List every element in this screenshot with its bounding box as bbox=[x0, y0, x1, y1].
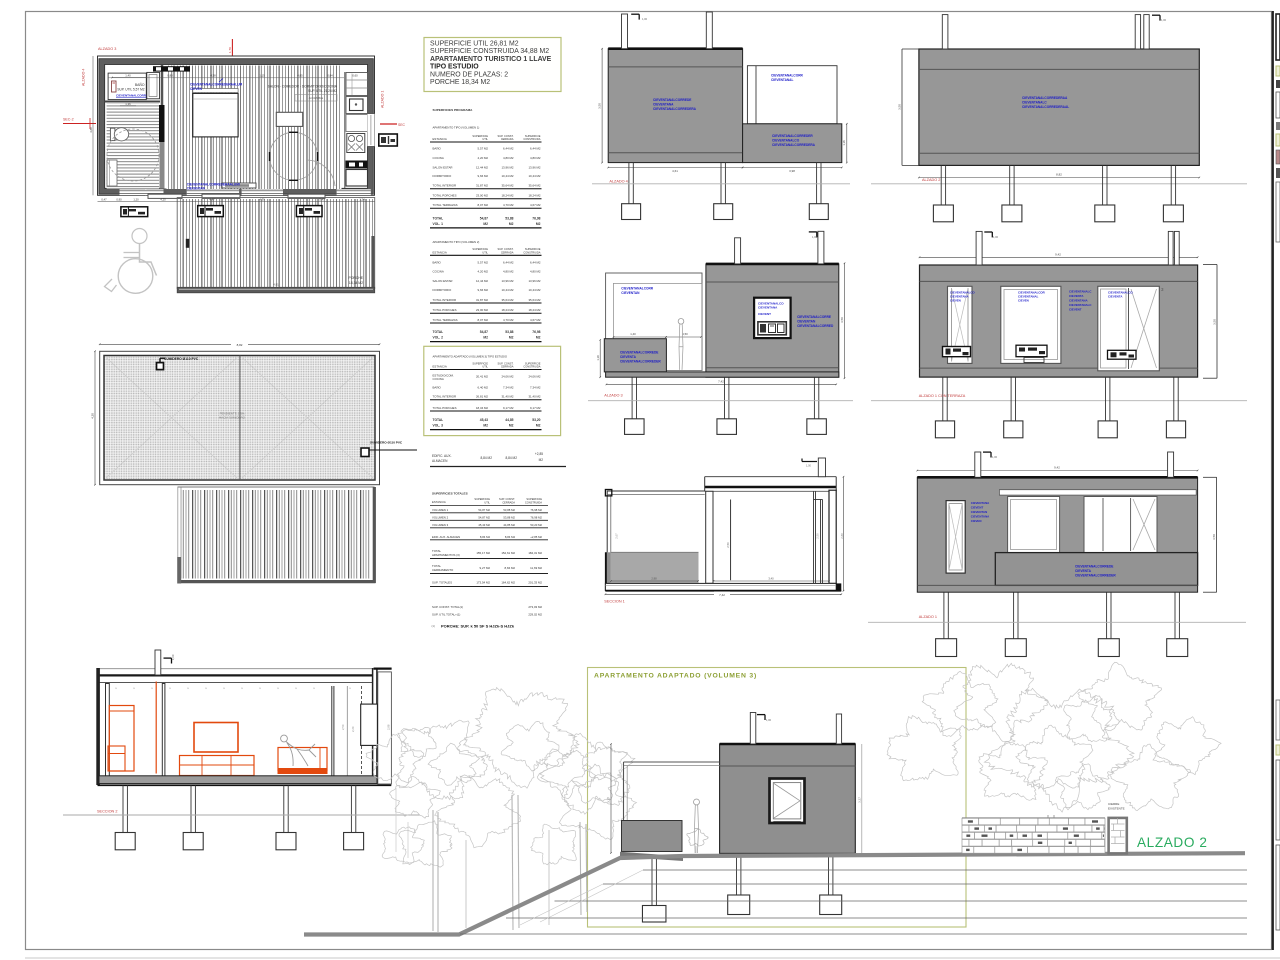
svg-text:×: × bbox=[151, 687, 153, 691]
svg-text:1,15: 1,15 bbox=[259, 74, 265, 78]
svg-text:SECCION 2: SECCION 2 bbox=[97, 810, 117, 814]
svg-text:35,64 M2: 35,64 M2 bbox=[501, 184, 513, 188]
svg-text:31,87 M2: 31,87 M2 bbox=[476, 298, 488, 302]
svg-text:23,00 M2: 23,00 M2 bbox=[476, 194, 488, 198]
svg-text:31,40 M2: 31,40 M2 bbox=[501, 395, 513, 399]
svg-text:5,57 M2: 5,57 M2 bbox=[478, 260, 489, 264]
svg-text:CIEVEN: CIEVEN bbox=[1018, 299, 1029, 303]
svg-text:4,47: 4,47 bbox=[209, 197, 215, 201]
svg-text:3,50: 3,50 bbox=[840, 317, 844, 323]
svg-text:1,00: 1,00 bbox=[171, 654, 175, 660]
svg-text:5,57 M2: 5,57 M2 bbox=[478, 147, 489, 151]
svg-text:CIEVENTANALCORREDERAA: CIEVENTANALCORREDERAA bbox=[1022, 96, 1068, 100]
svg-text:×: × bbox=[259, 687, 261, 691]
svg-text:3,40: 3,40 bbox=[768, 576, 774, 580]
svg-text:CIEVENTANALCORREDER: CIEVENTANALCORREDER bbox=[620, 360, 661, 364]
svg-text:EXISTENTE: EXISTENTE bbox=[1108, 807, 1125, 811]
svg-text:2,50: 2,50 bbox=[341, 724, 345, 730]
svg-text:(1): (1) bbox=[432, 624, 435, 628]
svg-text:12,44 M2: 12,44 M2 bbox=[476, 165, 488, 169]
svg-text:54,87: 54,87 bbox=[480, 330, 488, 334]
svg-text:8,84 M2: 8,84 M2 bbox=[505, 535, 516, 539]
svg-text:4,39: 4,39 bbox=[259, 197, 265, 201]
svg-text:2,50: 2,50 bbox=[726, 542, 730, 548]
svg-text:CIEVENTANALCO: CIEVENTANALCO bbox=[772, 139, 800, 143]
svg-text:24,06 M2: 24,06 M2 bbox=[528, 375, 540, 379]
svg-text:18,24 M2: 18,24 M2 bbox=[528, 194, 540, 198]
svg-text:53,88: 53,88 bbox=[505, 217, 513, 221]
svg-text:20,41 M2: 20,41 M2 bbox=[476, 375, 488, 379]
svg-text:CIEVENTANALCORREDERA: CIEVENTANALCORREDERA bbox=[653, 107, 697, 111]
svg-text:2,88: 2,88 bbox=[387, 724, 391, 730]
svg-text:CIEVENTA: CIEVENTA bbox=[1069, 294, 1084, 298]
svg-text:6,44 M2: 6,44 M2 bbox=[530, 147, 541, 151]
svg-text:CIEVENTAN: CIEVENTAN bbox=[971, 510, 988, 514]
svg-text:4,81: 4,81 bbox=[273, 283, 279, 287]
svg-text:ALZADO 2: ALZADO 2 bbox=[1137, 835, 1208, 850]
svg-text:CIEVENTAN: CIEVENTAN bbox=[187, 186, 206, 190]
svg-text:TOTAL INTERIOR: TOTAL INTERIOR bbox=[433, 395, 457, 399]
svg-text:3,27: 3,27 bbox=[857, 797, 861, 803]
svg-text:4,70 M2: 4,70 M2 bbox=[503, 318, 514, 322]
svg-text:CIEVENTANALCORRED: CIEVENTANALCORRED bbox=[116, 94, 151, 98]
svg-text:×: × bbox=[187, 687, 189, 691]
svg-text:M2: M2 bbox=[509, 423, 514, 427]
svg-text:8,82: 8,82 bbox=[237, 343, 243, 347]
svg-text:3,50: 3,50 bbox=[1212, 534, 1216, 540]
svg-text:CIEVENTANA: CIEVENTANA bbox=[971, 515, 990, 519]
svg-text:8,07 M2: 8,07 M2 bbox=[478, 318, 489, 322]
svg-text:×: × bbox=[115, 687, 117, 691]
svg-text:CIERRE: CIERRE bbox=[1108, 802, 1119, 806]
svg-text:CONSTRUIDA: CONSTRUIDA bbox=[523, 137, 540, 141]
svg-text:5,47: 5,47 bbox=[319, 197, 325, 201]
svg-text:9,42: 9,42 bbox=[1054, 466, 1060, 470]
svg-text:0,47: 0,47 bbox=[101, 197, 107, 201]
svg-text:ALZADO 2: ALZADO 2 bbox=[922, 178, 940, 182]
svg-text:TOTAL: TOTAL bbox=[433, 217, 444, 221]
svg-text:4,88: 4,88 bbox=[89, 127, 93, 133]
svg-text:CIEVENTA: CIEVENTA bbox=[1108, 295, 1123, 299]
svg-text:53,20 M2: 53,20 M2 bbox=[530, 523, 542, 527]
svg-text:M2: M2 bbox=[483, 222, 488, 226]
svg-text:BAÑO: BAÑO bbox=[433, 146, 442, 151]
svg-text:CIEVEN: CIEVEN bbox=[190, 87, 203, 91]
svg-text:ESTANCIA: ESTANCIA bbox=[433, 250, 447, 254]
svg-text:EDIFIC. AUX.: EDIFIC. AUX. bbox=[432, 454, 452, 458]
svg-text:CIEVENT: CIEVENT bbox=[1069, 308, 1082, 312]
svg-text:VOL. 3: VOL. 3 bbox=[433, 423, 444, 427]
svg-text:53,20: 53,20 bbox=[532, 418, 540, 422]
svg-text:CONSTRUIDA: CONSTRUIDA bbox=[523, 250, 540, 254]
svg-text:76,98 M2: 76,98 M2 bbox=[530, 508, 542, 512]
svg-text:CIEVENTANALCORREDER: CIEVENTANALCORREDER bbox=[1075, 574, 1116, 578]
svg-text:9,66 M2: 9,66 M2 bbox=[478, 288, 489, 292]
svg-text:COCINA: COCINA bbox=[433, 270, 444, 274]
svg-text:3,50: 3,50 bbox=[598, 103, 602, 109]
svg-text:173,54 M2: 173,54 M2 bbox=[476, 581, 490, 585]
svg-text:1,18: 1,18 bbox=[596, 355, 600, 361]
svg-text:44,85 M2: 44,85 M2 bbox=[503, 523, 515, 527]
svg-text:1,00: 1,00 bbox=[993, 235, 999, 239]
svg-text:VOL. 2: VOL. 2 bbox=[433, 336, 444, 340]
svg-text:CERRADA: CERRADA bbox=[501, 365, 514, 369]
svg-text:13,96 M2: 13,96 M2 bbox=[528, 279, 540, 283]
svg-text:ALZADO 1 CON TERRAZA: ALZADO 1 CON TERRAZA bbox=[919, 394, 966, 398]
svg-text:DORMITORIO: DORMITORIO bbox=[433, 174, 452, 178]
svg-text:1,40: 1,40 bbox=[630, 332, 636, 336]
svg-text:SEC-2: SEC-2 bbox=[63, 118, 74, 122]
svg-text:M2: M2 bbox=[536, 222, 541, 226]
svg-text:1,00: 1,00 bbox=[812, 235, 818, 239]
svg-text:TOTAL: TOTAL bbox=[433, 418, 444, 422]
svg-text:7,34 M2: 7,34 M2 bbox=[503, 385, 514, 389]
svg-text:TOTAL INTERIOR: TOTAL INTERIOR bbox=[433, 298, 457, 302]
svg-text:4,80 M2: 4,80 M2 bbox=[530, 270, 541, 274]
svg-text:4,85: 4,85 bbox=[297, 74, 303, 78]
svg-text:SUMIDERO Ø110 PVC: SUMIDERO Ø110 PVC bbox=[370, 441, 403, 445]
svg-text:×: × bbox=[313, 687, 315, 691]
svg-text:1,00: 1,00 bbox=[992, 455, 998, 459]
svg-text:CIEVENT: CIEVENT bbox=[758, 312, 771, 316]
svg-text:1,00: 1,00 bbox=[1161, 18, 1167, 22]
svg-text:SUMIDERO Ø110 PVC: SUMIDERO Ø110 PVC bbox=[164, 357, 199, 361]
svg-text:6,44 M2: 6,44 M2 bbox=[530, 260, 541, 264]
svg-text:54,87: 54,87 bbox=[480, 217, 488, 221]
svg-text:CONSTRUIDA: CONSTRUIDA bbox=[523, 365, 540, 369]
svg-text:CIEVENTANA: CIEVENTANA bbox=[971, 501, 990, 505]
svg-text:HACIA SUMIDERO: HACIA SUMIDERO bbox=[219, 416, 246, 420]
svg-text:3,27: 3,27 bbox=[606, 797, 610, 803]
svg-text:13,96 M2: 13,96 M2 bbox=[501, 279, 513, 283]
svg-text:CIEVENTANA: CIEVENTANA bbox=[758, 306, 778, 310]
svg-text:PORCHE: SUP. k 50 SF S HJZk-S: PORCHE: SUP. k 50 SF S HJZk-S HJZk bbox=[441, 623, 515, 628]
svg-text:0,80: 0,80 bbox=[167, 74, 173, 78]
svg-text:SUPERFICIE: SUPERFICIE bbox=[474, 497, 490, 501]
svg-text:SUP. UTIL TOTAL+(1): SUP. UTIL TOTAL+(1) bbox=[432, 613, 460, 617]
svg-text:CIEVENTA: CIEVENTA bbox=[1075, 569, 1092, 573]
svg-text:CIEVENTANALCORR: CIEVENTANALCORR bbox=[771, 74, 804, 78]
svg-text:×: × bbox=[133, 687, 135, 691]
svg-text:CIEVENTANALCORREDE: CIEVENTANALCORREDE bbox=[620, 351, 658, 355]
svg-text:SUP. CONST. TOTAL(1): SUP. CONST. TOTAL(1) bbox=[432, 605, 463, 609]
svg-text:18,24 M2: 18,24 M2 bbox=[501, 194, 513, 198]
svg-text:18,24 M2: 18,24 M2 bbox=[501, 308, 513, 312]
svg-text:UTIL: UTIL bbox=[482, 250, 488, 254]
svg-text:1,36: 1,36 bbox=[125, 102, 131, 106]
svg-text:UTIL: UTIL bbox=[484, 500, 490, 504]
svg-text:VOLUMEN 1: VOLUMEN 1 bbox=[432, 508, 449, 512]
svg-text:0,90: 0,90 bbox=[116, 197, 122, 201]
svg-text:6,44 M2: 6,44 M2 bbox=[503, 260, 514, 264]
svg-text:SALON ESTAR: SALON ESTAR bbox=[433, 279, 453, 283]
svg-text:6,44 M2: 6,44 M2 bbox=[503, 147, 514, 151]
svg-text:2,67: 2,67 bbox=[615, 533, 619, 539]
svg-text:CERRADA: CERRADA bbox=[501, 250, 514, 254]
svg-text:ALMACEN: ALMACEN bbox=[432, 459, 448, 463]
svg-text:CERRAMIENTO: CERRAMIENTO bbox=[432, 568, 454, 572]
svg-text:45,43 M2: 45,43 M2 bbox=[478, 523, 490, 527]
svg-text:DORMITORIO: DORMITORIO bbox=[433, 288, 452, 292]
svg-text:CIEVENTANALCORREDE: CIEVENTANALCORREDE bbox=[1075, 565, 1113, 569]
svg-text:7,42: 7,42 bbox=[718, 380, 724, 384]
svg-text:18,24 M2: 18,24 M2 bbox=[528, 308, 540, 312]
svg-text:8,84 M2: 8,84 M2 bbox=[505, 566, 516, 570]
svg-text:53,88 M2: 53,88 M2 bbox=[503, 508, 515, 512]
svg-text:8,84 M2: 8,84 M2 bbox=[480, 535, 491, 539]
svg-text:4,20 M2: 4,20 M2 bbox=[478, 270, 489, 274]
svg-text:UTIL: UTIL bbox=[482, 365, 488, 369]
svg-text:CIEVENT: CIEVENT bbox=[971, 506, 984, 510]
svg-text:4,50: 4,50 bbox=[682, 332, 688, 336]
svg-text:4,61: 4,61 bbox=[672, 169, 678, 173]
svg-text:201,33 M2: 201,33 M2 bbox=[528, 581, 542, 585]
svg-text:TOTAL PORCHES: TOTAL PORCHES bbox=[433, 308, 457, 312]
svg-text:12,44 M2: 12,44 M2 bbox=[476, 279, 488, 283]
svg-text:×: × bbox=[295, 687, 297, 691]
svg-text:1,00: 1,00 bbox=[806, 465, 811, 468]
svg-text:CIEVEN: CIEVEN bbox=[950, 299, 961, 303]
svg-text:3,50: 3,50 bbox=[897, 104, 901, 110]
svg-text:M2: M2 bbox=[483, 336, 488, 340]
svg-text:APARTAMENTO TIPO (VOLUMEN 2): APARTAMENTO TIPO (VOLUMEN 2) bbox=[433, 240, 480, 244]
svg-text:CIEVENTANALCORR: CIEVENTANALCORR bbox=[621, 287, 654, 291]
svg-text:EDIF. AUX. ALMACEN: EDIF. AUX. ALMACEN bbox=[432, 535, 460, 539]
svg-text:10,44 M2: 10,44 M2 bbox=[528, 174, 540, 178]
svg-text:TOTAL TERRAZAS: TOTAL TERRAZAS bbox=[433, 318, 458, 322]
svg-text:4,20: 4,20 bbox=[160, 197, 166, 201]
svg-text:COCINA: COCINA bbox=[433, 377, 444, 381]
svg-text:PORCHE: PORCHE bbox=[348, 276, 363, 280]
svg-text:ALZADO 3: ALZADO 3 bbox=[98, 47, 116, 51]
svg-text:54,87 M2: 54,87 M2 bbox=[478, 516, 490, 520]
svg-text:35,64 M2: 35,64 M2 bbox=[501, 298, 513, 302]
svg-text:10,44 M2: 10,44 M2 bbox=[528, 288, 540, 292]
svg-text:2,50: 2,50 bbox=[816, 533, 820, 539]
svg-text:×: × bbox=[277, 687, 279, 691]
svg-text:CIEVENTANA: CIEVENTANA bbox=[1069, 299, 1088, 303]
svg-text:54,87 M2: 54,87 M2 bbox=[478, 508, 490, 512]
svg-text:152,61 M2: 152,61 M2 bbox=[501, 551, 515, 555]
svg-text:155,17 M2: 155,17 M2 bbox=[476, 551, 490, 555]
svg-text:SEC: SEC bbox=[398, 123, 406, 127]
svg-text:164,62 M2: 164,62 M2 bbox=[501, 581, 515, 585]
svg-text:×: × bbox=[223, 687, 225, 691]
svg-text:CONSTRUIDA: CONSTRUIDA bbox=[525, 500, 542, 504]
svg-text:NUMERO DE PLAZAS: 2: NUMERO DE PLAZAS: 2 bbox=[430, 71, 508, 78]
svg-text:CIEVENTANALC: CIEVENTANALC bbox=[1069, 303, 1092, 307]
svg-text:ALZADO 4: ALZADO 4 bbox=[609, 179, 627, 183]
svg-text:ALZADO 1: ALZADO 1 bbox=[381, 91, 385, 108]
svg-text:M2: M2 bbox=[509, 336, 514, 340]
svg-text:8,84 M2: 8,84 M2 bbox=[480, 456, 492, 460]
svg-text:TOTAL: TOTAL bbox=[433, 330, 444, 334]
svg-text:53,88 M2: 53,88 M2 bbox=[503, 516, 515, 520]
svg-text:9,42: 9,42 bbox=[1055, 252, 1061, 256]
svg-text:13,96 M2: 13,96 M2 bbox=[528, 165, 540, 169]
svg-text:M2: M2 bbox=[536, 423, 541, 427]
svg-text:SUP. CONST.: SUP. CONST. bbox=[499, 497, 515, 501]
svg-text:TOTAL PORCHES: TOTAL PORCHES bbox=[433, 194, 457, 198]
svg-text:10,44 M2: 10,44 M2 bbox=[501, 174, 513, 178]
svg-text:76,98: 76,98 bbox=[532, 330, 540, 334]
svg-text:M2: M2 bbox=[483, 423, 488, 427]
svg-text:CIEVENTANALCORREDERAAL: CIEVENTANALCORREDERAAL bbox=[1022, 105, 1069, 109]
svg-text:SUPERFICIES PROGRAMA: SUPERFICIES PROGRAMA bbox=[433, 108, 474, 112]
svg-text:8,07 M2: 8,07 M2 bbox=[478, 203, 489, 207]
svg-text:APARTAMENTO TIPO (VOLUMEN 1): APARTAMENTO TIPO (VOLUMEN 1) bbox=[433, 126, 480, 130]
svg-text:CIEVEN: CIEVEN bbox=[971, 519, 982, 523]
svg-text:1,00: 1,00 bbox=[642, 17, 648, 21]
svg-text:VOLUMEN 3: VOLUMEN 3 bbox=[432, 523, 449, 527]
svg-text:TOTAL PORCHES: TOTAL PORCHES bbox=[433, 406, 457, 410]
svg-text:VOL. 1: VOL. 1 bbox=[433, 222, 444, 226]
svg-text:SECCION 1: SECCION 1 bbox=[604, 599, 624, 603]
svg-text:CIEVENTANALCORREDERA: CIEVENTANALCORREDERA bbox=[772, 143, 816, 147]
svg-text:M2: M2 bbox=[536, 336, 541, 340]
svg-text:APARTAMENTOS (3): APARTAMENTOS (3) bbox=[432, 553, 460, 557]
svg-text:ALZADO 1: ALZADO 1 bbox=[919, 615, 937, 619]
svg-text:×: × bbox=[241, 687, 243, 691]
svg-text:2,98: 2,98 bbox=[651, 576, 657, 580]
svg-text:18,34 M2: 18,34 M2 bbox=[476, 406, 488, 410]
svg-text:26,81 M2: 26,81 M2 bbox=[476, 395, 488, 399]
svg-text:SUPERFICIE: SUPERFICIE bbox=[526, 497, 542, 501]
svg-text:APARTAMENTO ADAPTADO (VOLUMEN: APARTAMENTO ADAPTADO (VOLUMEN 3) bbox=[594, 673, 757, 680]
svg-text:PORCHE 18,34 M2: PORCHE 18,34 M2 bbox=[430, 79, 490, 86]
svg-text:31,40 M2: 31,40 M2 bbox=[528, 395, 540, 399]
svg-text:3,50: 3,50 bbox=[1212, 319, 1216, 325]
svg-text:CIEVENTANAL: CIEVENTANAL bbox=[771, 78, 793, 82]
svg-text:4,67 M2: 4,67 M2 bbox=[530, 203, 541, 207]
svg-text:BAÑO: BAÑO bbox=[433, 259, 442, 264]
svg-text:184,31 M2: 184,31 M2 bbox=[528, 551, 542, 555]
svg-text:9,17 M2: 9,17 M2 bbox=[530, 406, 541, 410]
svg-text:APARTAMENTO ADAPTADO (VOLUMEN: APARTAMENTO ADAPTADO (VOLUMEN 3) TIPO ES… bbox=[433, 355, 508, 359]
svg-text:ESTANCIA: ESTANCIA bbox=[432, 500, 446, 504]
svg-text:8,84 M2: 8,84 M2 bbox=[505, 456, 517, 460]
svg-text:4,80 M2: 4,80 M2 bbox=[503, 156, 514, 160]
svg-text:TOTAL TERRAZAS: TOTAL TERRAZAS bbox=[433, 203, 458, 207]
svg-text:APARTAMENTO TURISTICO 1 LLAVE: APARTAMENTO TURISTICO 1 LLAVE bbox=[430, 56, 552, 63]
svg-text:CERRADA: CERRADA bbox=[502, 500, 515, 504]
svg-text:CIEVENTANALCORRE: CIEVENTANALCORRE bbox=[797, 315, 831, 319]
svg-text:1,40: 1,40 bbox=[125, 74, 131, 78]
svg-text:UTIL: UTIL bbox=[482, 137, 488, 141]
svg-text:ESTANCIA: ESTANCIA bbox=[433, 365, 447, 369]
svg-text:24,06 M2: 24,06 M2 bbox=[501, 375, 513, 379]
svg-text:ESTANCIA: ESTANCIA bbox=[433, 137, 447, 141]
svg-text:3,98: 3,98 bbox=[789, 169, 795, 173]
svg-text:1,24: 1,24 bbox=[359, 197, 365, 201]
svg-text:CIEVENTAN: CIEVENTAN bbox=[797, 320, 816, 324]
svg-text:BAÑO: BAÑO bbox=[135, 82, 145, 87]
svg-text:1,16: 1,16 bbox=[842, 140, 846, 146]
svg-text:4,80 M2: 4,80 M2 bbox=[530, 156, 541, 160]
svg-text:2,20: 2,20 bbox=[351, 726, 355, 732]
svg-text:SUP. TOTALES: SUP. TOTALES bbox=[432, 581, 452, 585]
svg-text:SUPERFICIES TOTALES: SUPERFICIES TOTALES bbox=[432, 492, 468, 496]
svg-text:4,67 M2: 4,67 M2 bbox=[530, 318, 541, 322]
svg-text:CIEVENTANALCORREDER: CIEVENTANALCORREDER bbox=[772, 134, 813, 138]
svg-text:SUP. UTIL 5,57 M2: SUP. UTIL 5,57 M2 bbox=[117, 88, 144, 92]
svg-text:53,88: 53,88 bbox=[505, 330, 513, 334]
svg-text:CIEVENTANALC: CIEVENTANALC bbox=[1022, 101, 1047, 105]
svg-text:23,00 M2: 23,00 M2 bbox=[476, 308, 488, 312]
svg-text:0,84: 0,84 bbox=[327, 74, 333, 78]
svg-text:11,69 M2: 11,69 M2 bbox=[530, 566, 542, 570]
svg-text:44,85: 44,85 bbox=[505, 418, 513, 422]
svg-text:CIEVENTANALCORREDE: CIEVENTANALCORREDE bbox=[653, 98, 691, 102]
svg-text:45,43: 45,43 bbox=[480, 418, 488, 422]
svg-text:×: × bbox=[349, 687, 351, 691]
svg-text:ALZADO 4: ALZADO 4 bbox=[82, 69, 86, 86]
svg-text:1,00: 1,00 bbox=[766, 718, 772, 722]
svg-text:18,34 M2: 18,34 M2 bbox=[349, 281, 363, 285]
svg-text:CIEVENTANALCORRED: CIEVENTANALCORRED bbox=[797, 324, 834, 328]
svg-text:7,42: 7,42 bbox=[719, 593, 725, 597]
svg-text:VOLUMEN 2: VOLUMEN 2 bbox=[432, 516, 449, 520]
svg-text:10,44 M2: 10,44 M2 bbox=[501, 288, 513, 292]
svg-text:×: × bbox=[169, 687, 171, 691]
svg-text:35,64 M2: 35,64 M2 bbox=[528, 184, 540, 188]
svg-text:ACCESIBLE: ACCESIBLE bbox=[309, 96, 324, 100]
svg-text:+2,85 M2: +2,85 M2 bbox=[530, 535, 542, 539]
svg-text:+2,85: +2,85 bbox=[535, 452, 543, 456]
svg-text:CIEVENTAN: CIEVENTAN bbox=[621, 291, 640, 295]
svg-text:COCINA: COCINA bbox=[433, 156, 444, 160]
svg-text:4,80 M2: 4,80 M2 bbox=[503, 270, 514, 274]
svg-text:7,34 M2: 7,34 M2 bbox=[530, 385, 541, 389]
svg-text:8,82: 8,82 bbox=[1056, 173, 1062, 177]
svg-text:9,66 M2: 9,66 M2 bbox=[478, 174, 489, 178]
svg-text:BAÑO: BAÑO bbox=[433, 384, 442, 389]
svg-text:M2: M2 bbox=[509, 222, 514, 226]
svg-text:CIEVENTA: CIEVENTA bbox=[620, 355, 637, 359]
svg-text:1,70: 1,70 bbox=[228, 47, 232, 53]
svg-text:35,64 M2: 35,64 M2 bbox=[528, 298, 540, 302]
svg-text:273,03 M2: 273,03 M2 bbox=[528, 605, 542, 609]
svg-text:TOTAL INTERIOR: TOTAL INTERIOR bbox=[433, 184, 457, 188]
svg-text:SUP. UTIL 21,24 M2: SUP. UTIL 21,24 M2 bbox=[308, 89, 337, 93]
svg-text:6,40 M2: 6,40 M2 bbox=[478, 385, 489, 389]
svg-text:SUPERFICIE UTIL 26,81 M2: SUPERFICIE UTIL 26,81 M2 bbox=[430, 41, 519, 48]
svg-text:0,60: 0,60 bbox=[352, 74, 358, 78]
svg-text:M2: M2 bbox=[539, 458, 544, 462]
svg-text:4,20: 4,20 bbox=[91, 413, 95, 419]
svg-text:×: × bbox=[205, 687, 207, 691]
svg-text:SALON - COMEDOR - DORMITORIO/C: SALON - COMEDOR - DORMITORIO/COCINA bbox=[268, 85, 338, 89]
svg-text:TIPO ESTUDIO: TIPO ESTUDIO bbox=[430, 64, 479, 71]
svg-text:CIEVENTANA: CIEVENTANA bbox=[653, 103, 674, 107]
svg-text:4,70 M2: 4,70 M2 bbox=[503, 203, 514, 207]
svg-text:CIEVENTANALC: CIEVENTANALC bbox=[1069, 290, 1092, 294]
svg-text:9,27 M2: 9,27 M2 bbox=[480, 566, 491, 570]
svg-text:CERRADA: CERRADA bbox=[501, 137, 514, 141]
svg-text:13,96 M2: 13,96 M2 bbox=[501, 165, 513, 169]
svg-text:4,38: 4,38 bbox=[210, 74, 216, 78]
svg-text:9,17 M2: 9,17 M2 bbox=[503, 406, 514, 410]
svg-text:ALZADO 3: ALZADO 3 bbox=[604, 394, 622, 398]
svg-text:76,98 M2: 76,98 M2 bbox=[530, 516, 542, 520]
svg-text:229,02 M2: 229,02 M2 bbox=[528, 613, 542, 617]
svg-text:76,98: 76,98 bbox=[532, 217, 540, 221]
svg-text:SALON ESTAR: SALON ESTAR bbox=[433, 165, 453, 169]
svg-text:31,87 M2: 31,87 M2 bbox=[476, 184, 488, 188]
svg-text:1,20: 1,20 bbox=[133, 197, 139, 201]
svg-text:4,20 M2: 4,20 M2 bbox=[478, 156, 489, 160]
svg-text:SUPERFICIE CONSTRUIDA 34,88 M2: SUPERFICIE CONSTRUIDA 34,88 M2 bbox=[430, 48, 549, 55]
